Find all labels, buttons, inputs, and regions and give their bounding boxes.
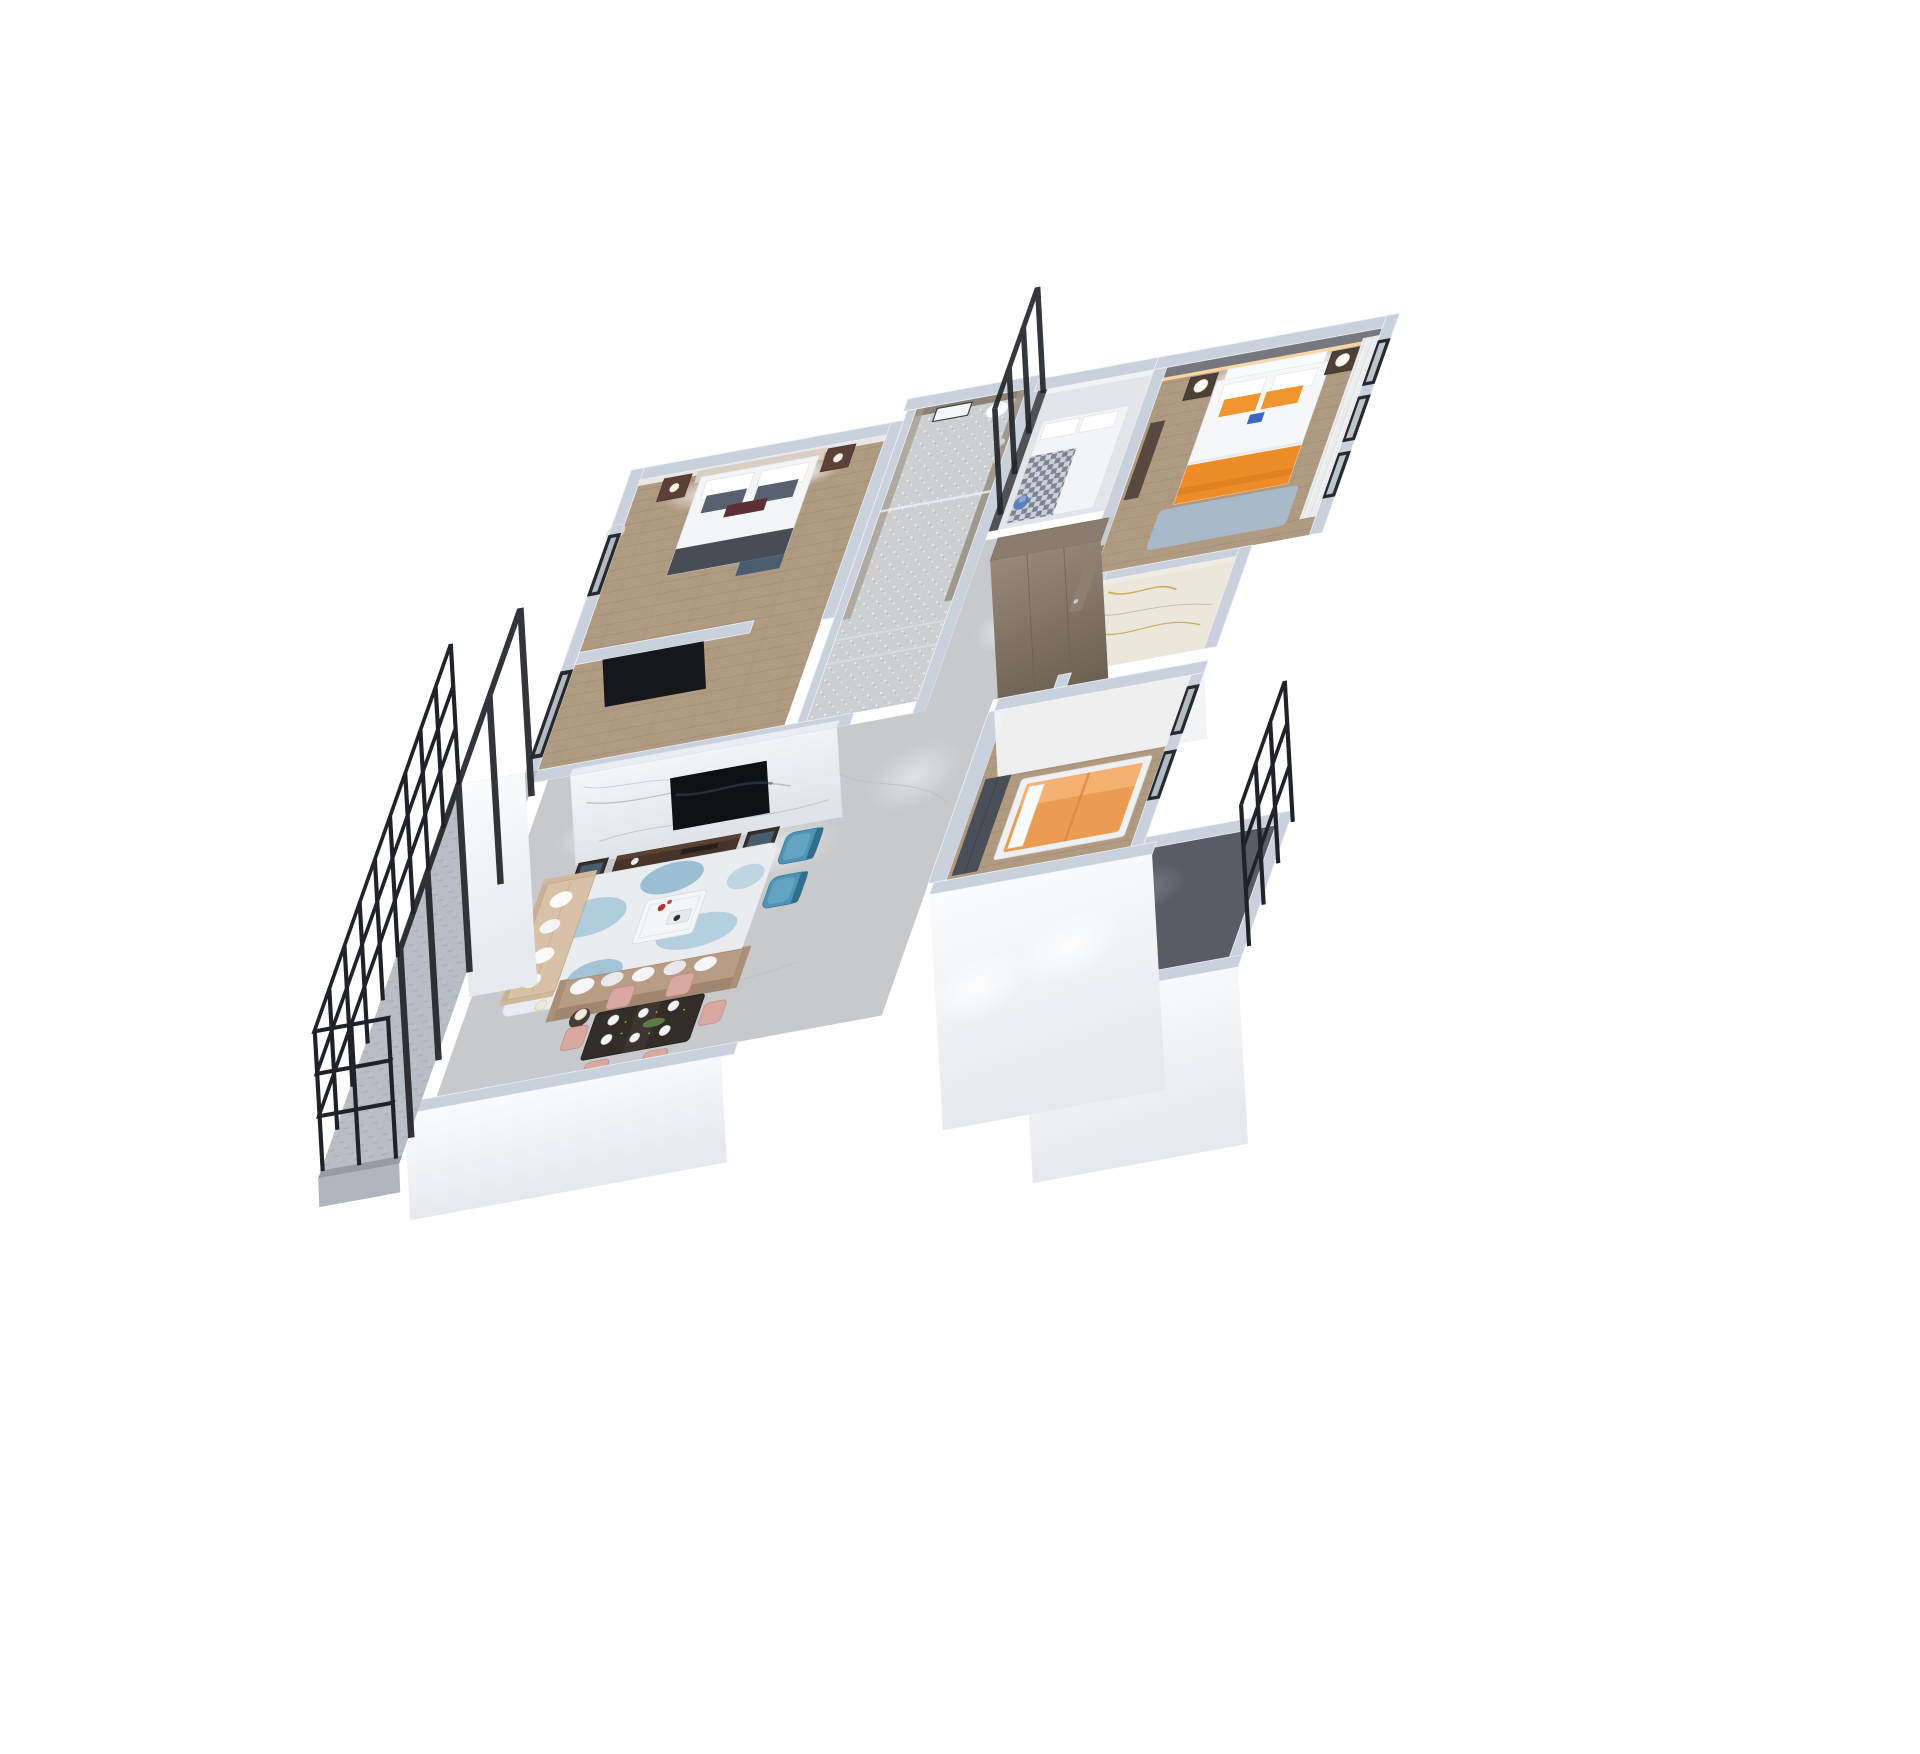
room-master-bedroom [1081, 313, 1399, 576]
render-canvas [0, 0, 1920, 1754]
railing-post [1229, 669, 1348, 833]
floorplan-render [0, 0, 1920, 1754]
apartment [206, 187, 1585, 1334]
